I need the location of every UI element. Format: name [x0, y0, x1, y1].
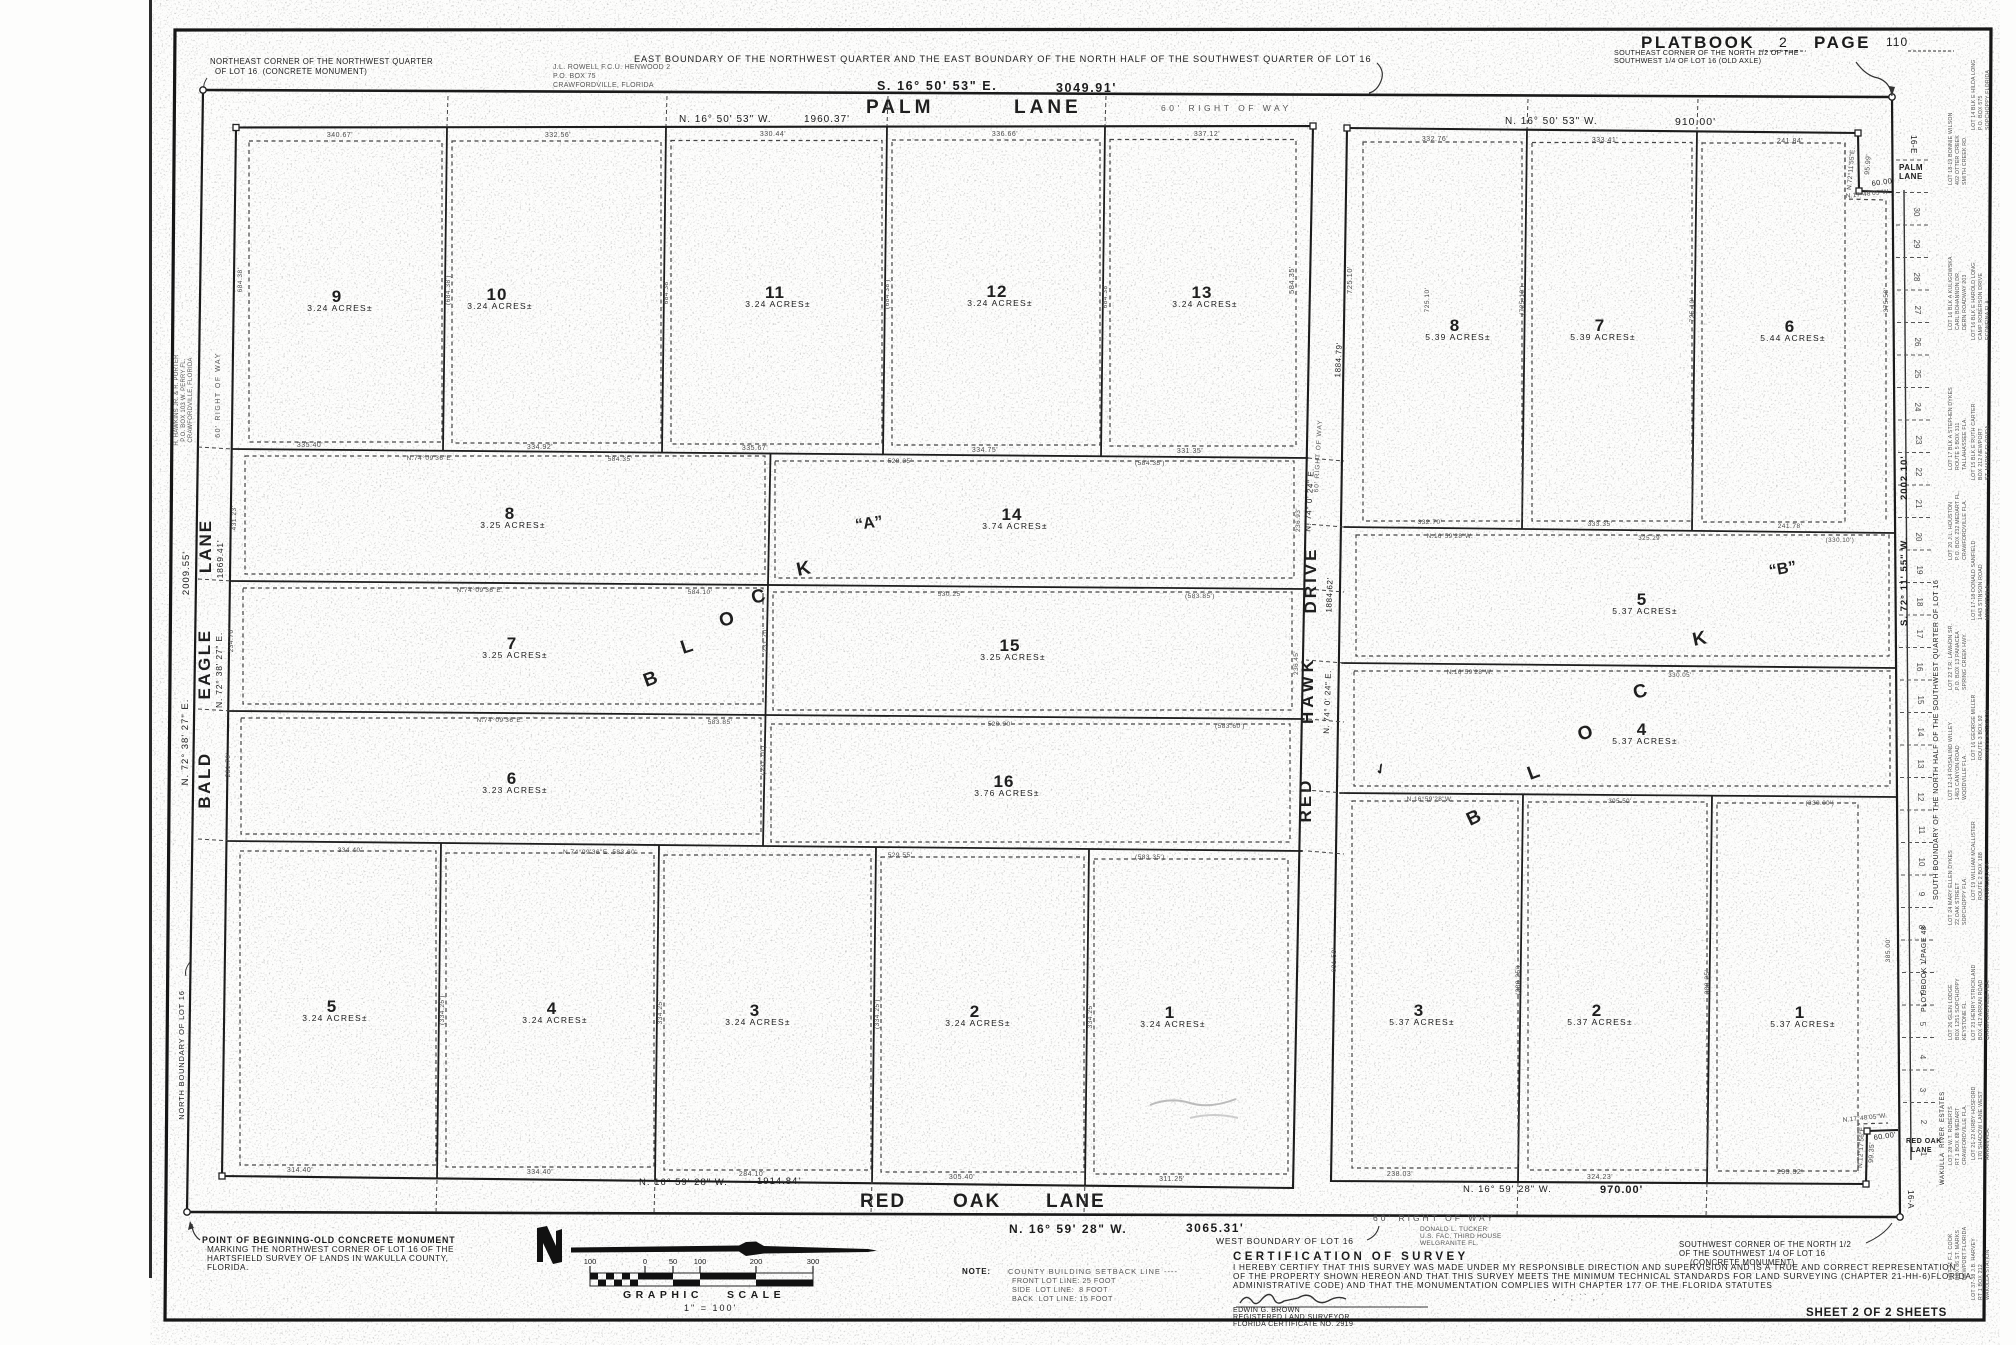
svg-text:3.24 ACRES±: 3.24 ACRES± — [945, 1018, 1011, 1028]
svg-text:529.90': 529.90' — [988, 721, 1013, 728]
svg-text:N. 16° 59' 28" W.: N. 16° 59' 28" W. — [1463, 1184, 1552, 1195]
svg-text:N.74°09'36"E.: N.74°09'36"E. — [407, 454, 454, 462]
svg-text:(231.70'): (231.70') — [760, 745, 767, 775]
svg-text:OAK: OAK — [953, 1191, 1001, 1212]
svg-text:PANACEA FLA.: PANACEA FLA. — [1985, 861, 1991, 900]
svg-text:3.76 ACRES±: 3.76 ACRES± — [974, 788, 1040, 798]
svg-text:J.L. ROWELL F.C.U. HENWOOD 2: J.L. ROWELL F.C.U. HENWOOD 2 — [553, 64, 670, 71]
svg-text:305.50': 305.50' — [1608, 798, 1632, 805]
svg-text:TALLAHASSEE FLA.: TALLAHASSEE FLA. — [1962, 418, 1968, 470]
svg-text:5.37 ACRES±: 5.37 ACRES± — [1612, 736, 1678, 746]
svg-text:28: 28 — [1912, 273, 1921, 282]
svg-text:3065.31': 3065.31' — [1186, 1221, 1244, 1235]
svg-text:(583.60'): (583.60') — [1215, 723, 1245, 730]
svg-text:NORTH BOUNDARY OF LOT 16: NORTH BOUNDARY OF LOT 16 — [177, 990, 186, 1120]
svg-text:50: 50 — [669, 1257, 677, 1266]
svg-text:LOT 26 GLEN LODGE: LOT 26 GLEN LODGE — [1948, 984, 1954, 1040]
svg-text:5.37 ACRES±: 5.37 ACRES± — [1612, 606, 1678, 616]
svg-text:402 OTTER CREEK: 402 OTTER CREEK — [1955, 135, 1961, 185]
svg-text:ROUTE 5 BOX 311: ROUTE 5 BOX 311 — [1955, 422, 1961, 470]
svg-text:2009.55': 2009.55' — [181, 551, 192, 595]
svg-text:3.23 ACRES±: 3.23 ACRES± — [482, 785, 548, 795]
svg-text:POINT OF BEGINNING-OLD CONCRET: POINT OF BEGINNING-OLD CONCRETE MONUMENT — [202, 1235, 455, 1245]
svg-text:13: 13 — [1916, 760, 1925, 769]
svg-text:631.58': 631.58' — [1331, 948, 1338, 973]
svg-text:ROUTE 2 BOX 188: ROUTE 2 BOX 188 — [1978, 852, 1984, 900]
svg-text:60' RIGHT OF WAY: 60' RIGHT OF WAY — [1373, 1213, 1496, 1223]
svg-text:22: 22 — [1914, 468, 1923, 477]
svg-text:OF THE SOUTHWEST 1/4 OF LOT 16: OF THE SOUTHWEST 1/4 OF LOT 16 — [1679, 1249, 1825, 1258]
svg-text:EAGLE: EAGLE — [195, 628, 214, 699]
svg-text:584.35': 584.35' — [1287, 266, 1296, 294]
svg-text:LANE: LANE — [196, 519, 215, 573]
svg-text:10: 10 — [1917, 858, 1926, 867]
svg-text:3.25 ACRES±: 3.25 ACRES± — [980, 652, 1046, 662]
svg-text:26: 26 — [1913, 338, 1922, 347]
svg-text:17: 17 — [1915, 630, 1924, 639]
svg-text:P.O. BOX 13 PANACEA: P.O. BOX 13 PANACEA — [1955, 631, 1961, 690]
svg-text:331.35': 331.35' — [1177, 448, 1203, 455]
svg-text:DERN ROADWAY 203: DERN ROADWAY 203 — [1962, 274, 1968, 330]
svg-text:335.40': 335.40' — [297, 442, 323, 449]
svg-text:WEST BOUNDARY OF LOT 16: WEST BOUNDARY OF LOT 16 — [1216, 1236, 1354, 1246]
svg-text:FLORIDA.: FLORIDA. — [207, 1263, 249, 1272]
svg-text:(583.35'): (583.35') — [1135, 854, 1165, 861]
svg-text:5.37 ACRES±: 5.37 ACRES± — [1389, 1017, 1455, 1027]
svg-text:170 SHADOW LANE WEST: 170 SHADOW LANE WEST — [1978, 1091, 1984, 1160]
svg-text:LOT 23 HENRY STRICKLAND: LOT 23 HENRY STRICKLAND — [1971, 964, 1977, 1040]
svg-text:SOUTHWEST CORNER OF THE NORTH: SOUTHWEST CORNER OF THE NORTH 1/2 — [1679, 1240, 1851, 1249]
svg-text:CRAWFORDVILLE, FLORIDA: CRAWFORDVILLE, FLORIDA — [188, 357, 194, 442]
svg-text:60' RIGHT OF WAY: 60' RIGHT OF WAY — [1161, 103, 1292, 113]
svg-text:584.10': 584.10' — [688, 589, 713, 596]
svg-text:5.39 ACRES±: 5.39 ACRES± — [1425, 332, 1491, 342]
svg-text:5.37 ACRES±: 5.37 ACRES± — [1567, 1017, 1633, 1027]
svg-text:SOUTHWEST 1/4 OF LOT 16 (OLD A: SOUTHWEST 1/4 OF LOT 16 (OLD AXLE) — [1614, 56, 1761, 65]
svg-text:1" = 100': 1" = 100' — [684, 1303, 737, 1313]
svg-text:27: 27 — [1913, 306, 1922, 315]
svg-text:N. 16° 59' 28" W.: N. 16° 59' 28" W. — [639, 1177, 728, 1188]
svg-text:LOT 20 J.L. HOUSTON: LOT 20 J.L. HOUSTON — [1948, 502, 1954, 560]
svg-text:DONALD L. TUCKER: DONALD L. TUCKER — [1420, 1226, 1488, 1233]
svg-text:N. 72° 38' 27" E.: N. 72° 38' 27" E. — [214, 632, 224, 708]
svg-text:9: 9 — [1917, 892, 1926, 897]
svg-text:375.58': 375.58' — [1883, 288, 1890, 313]
svg-text:3049.91': 3049.91' — [1056, 81, 1117, 95]
svg-text:(CONCRETE MONUMENT): (CONCRETE MONUMENT) — [1690, 1258, 1795, 1267]
svg-text:314.40': 314.40' — [287, 1167, 313, 1174]
svg-text:1463 CANYON ROAD: 1463 CANYON ROAD — [1955, 745, 1961, 800]
svg-text:910.00': 910.00' — [1675, 116, 1716, 128]
svg-text:684.38': 684.38' — [1102, 284, 1109, 309]
svg-text:16: 16 — [1915, 663, 1924, 672]
svg-text:SOPCHOPPY FLORIDA: SOPCHOPPY FLORIDA — [1985, 70, 1991, 130]
svg-text:388.25': 388.25' — [1704, 970, 1711, 995]
svg-text:340.67': 340.67' — [327, 132, 353, 139]
svg-text:P.O. BOX 232 MEDART FL.: P.O. BOX 232 MEDART FL. — [1955, 491, 1961, 560]
svg-text:FLORIDA CERTIFICATE NO. 2919: FLORIDA CERTIFICATE NO. 2919 — [1233, 1321, 1353, 1328]
svg-text:100: 100 — [584, 1257, 597, 1266]
svg-text:N.74°09'36"E.: N.74°09'36"E. — [457, 586, 504, 594]
svg-text:725.10': 725.10' — [1689, 298, 1696, 323]
svg-text:H. HAWKINS JR. & R. PORTER: H. HAWKINS JR. & R. PORTER — [174, 354, 180, 446]
svg-text:3.24 ACRES±: 3.24 ACRES± — [1140, 1019, 1206, 1029]
svg-text:NORTHEAST CORNER OF THE NORTHW: NORTHEAST CORNER OF THE NORTHWEST QUARTE… — [210, 57, 433, 66]
svg-text:385.00': 385.00' — [1885, 938, 1892, 963]
svg-text:25: 25 — [1913, 370, 1922, 379]
svg-text:MEDART FLA.: MEDART FLA. — [1985, 584, 1991, 620]
svg-text:U.S. FAC. THIRD HOUSE: U.S. FAC. THIRD HOUSE — [1420, 1233, 1502, 1240]
svg-text:5.44 ACRES±: 5.44 ACRES± — [1760, 333, 1826, 343]
svg-text:ARRAN FLA.: ARRAN FLA. — [1985, 1127, 1991, 1160]
svg-text:BOX 212 NEWPORT: BOX 212 NEWPORT — [1978, 427, 1984, 480]
svg-text:(684.38'): (684.38') — [884, 279, 891, 309]
svg-text:HAWK: HAWK — [1298, 656, 1317, 724]
svg-text:12: 12 — [1916, 793, 1925, 802]
svg-text:SPRING CREEK HWY.: SPRING CREEK HWY. — [1962, 633, 1968, 690]
svg-text:DRIVE: DRIVE — [1301, 547, 1320, 614]
svg-text:16-A: 16-A — [1906, 1190, 1915, 1209]
svg-text:30: 30 — [1912, 208, 1921, 217]
svg-text:REGISTERED LAND SURVEYOR: REGISTERED LAND SURVEYOR — [1233, 1314, 1350, 1321]
svg-text:332.56': 332.56' — [545, 132, 571, 139]
svg-text:GRAPHIC: GRAPHIC — [623, 1289, 703, 1301]
svg-text:EAST BOUNDARY OF THE NORTHWEST: EAST BOUNDARY OF THE NORTHWEST QUARTER A… — [634, 54, 1371, 64]
svg-text:725.10': 725.10' — [1345, 266, 1354, 294]
svg-text:241.78': 241.78' — [1778, 523, 1803, 530]
svg-text:P.O. BOX 103 W. PERRY FL.: P.O. BOX 103 W. PERRY FL. — [181, 358, 187, 442]
svg-text:LOT 12-14 ROSALIND WILLEY: LOT 12-14 ROSALIND WILLEY — [1948, 722, 1954, 800]
svg-text:21: 21 — [1914, 500, 1923, 509]
svg-text:22 OAK STREET: 22 OAK STREET — [1955, 882, 1961, 925]
svg-text:2: 2 — [1919, 1120, 1928, 1125]
svg-text:332.70': 332.70' — [1418, 519, 1443, 526]
svg-text:16-E: 16-E — [1909, 135, 1918, 154]
svg-text:684.38': 684.38' — [663, 280, 670, 305]
svg-text:HARTSFIELD SURVEY OF LANDS IN: HARTSFIELD SURVEY OF LANDS IN WAKULLA CO… — [207, 1254, 448, 1263]
svg-text:SOPCHOPPY FLA.: SOPCHOPPY FLA. — [1962, 877, 1968, 925]
svg-text:1443 STINSON ROAD: 1443 STINSON ROAD — [1978, 564, 1984, 620]
svg-text:0: 0 — [643, 1257, 647, 1266]
svg-text:18: 18 — [1915, 598, 1924, 607]
svg-text:LOT 17 BLK A STEPHEN DYKES: LOT 17 BLK A STEPHEN DYKES — [1948, 387, 1954, 470]
svg-text:334.40': 334.40' — [527, 1169, 553, 1176]
svg-text:LOT 22 T.R. LAWHON SR.: LOT 22 T.R. LAWHON SR. — [1948, 624, 1954, 690]
svg-text:3.74 ACRES±: 3.74 ACRES± — [982, 521, 1048, 531]
svg-text:(334.25'): (334.25') — [874, 999, 881, 1029]
svg-text:583.85': 583.85' — [708, 719, 733, 726]
svg-text:(684.38'): (684.38') — [445, 275, 452, 305]
svg-text:2002.10': 2002.10' — [1899, 455, 1910, 500]
svg-text:110: 110 — [1886, 35, 1908, 49]
svg-text:241.84': 241.84' — [1777, 138, 1803, 145]
svg-text:LOT 16 GEORGE MILLER: LOT 16 GEORGE MILLER — [1971, 694, 1977, 760]
svg-text:(388.25'): (388.25') — [1515, 965, 1522, 995]
svg-text:FRONT LOT LINE: 25 FOOT: FRONT LOT LINE: 25 FOOT — [1012, 1276, 1116, 1285]
svg-text:WAKULLA STATION: WAKULLA STATION — [1985, 709, 1991, 760]
svg-text:CRAWFORDVILLE, FLORIDA: CRAWFORDVILLE, FLORIDA — [553, 82, 654, 89]
svg-text:ROUTE 3 BOX 92: ROUTE 3 BOX 92 — [1978, 715, 1984, 760]
svg-text:529.55': 529.55' — [888, 852, 913, 859]
svg-text:COUNTY BUILDING SETBACK LINE -: COUNTY BUILDING SETBACK LINE ---- — [1008, 1267, 1178, 1276]
svg-text:970.00': 970.00' — [1600, 1184, 1643, 1196]
svg-text:3.24 ACRES±: 3.24 ACRES± — [302, 1013, 368, 1023]
svg-text:N.16°59'28"W.: N.16°59'28"W. — [1447, 669, 1493, 676]
svg-text:333.41': 333.41' — [1592, 137, 1618, 144]
svg-text:RT 1 BOX 88 MEDART: RT 1 BOX 88 MEDART — [1955, 1107, 1961, 1165]
svg-text:(583.85'): (583.85') — [1185, 593, 1215, 600]
svg-text:325.29': 325.29' — [1638, 535, 1662, 542]
svg-text:528.35': 528.35' — [888, 458, 913, 465]
svg-text:LOT 28 W.T. ROBERTS: LOT 28 W.T. ROBERTS — [1948, 1106, 1954, 1165]
svg-text:284.10': 284.10' — [739, 1171, 765, 1178]
svg-text:S. 72° 11' 55" W.: S. 72° 11' 55" W. — [1899, 537, 1910, 626]
svg-text:PALM: PALM — [1899, 163, 1923, 172]
svg-text:EDWIN G. BROWN: EDWIN G. BROWN — [1233, 1307, 1300, 1314]
svg-text:3.25 ACRES±: 3.25 ACRES± — [482, 650, 548, 660]
svg-text:SMITH CREEK RD.: SMITH CREEK RD. — [1962, 136, 1968, 185]
svg-text:684.38': 684.38' — [237, 268, 244, 293]
svg-text:BACK LOT LINE: 15 FOOT: BACK LOT LINE: 15 FOOT — [1012, 1294, 1113, 1303]
svg-text:KEYSTONE FL.: KEYSTONE FL. — [1962, 1001, 1968, 1041]
svg-text:CERTIFICATION OF SURVEY: CERTIFICATION OF SURVEY — [1233, 1251, 1469, 1263]
svg-text:OF LOT 16 (CONCRETE MONUMENT): OF LOT 16 (CONCRETE MONUMENT) — [215, 67, 367, 76]
svg-text:3.24 ACRES±: 3.24 ACRES± — [1172, 299, 1238, 309]
svg-text:3.24 ACRES±: 3.24 ACRES± — [522, 1015, 588, 1025]
svg-text:336.66': 336.66' — [992, 131, 1018, 138]
svg-text:N. 72° 38' 27" E.: N. 72° 38' 27" E. — [180, 699, 191, 786]
svg-text:CAMP ROBERSON DRIVE: CAMP ROBERSON DRIVE — [1978, 273, 1984, 340]
svg-text:BOX 412 ARRAN ROAD: BOX 412 ARRAN ROAD — [1978, 980, 1984, 1040]
svg-text:(334.25'): (334.25') — [439, 995, 446, 1025]
svg-text:CARL BOHANNON DR.: CARL BOHANNON DR. — [1955, 271, 1961, 330]
svg-text:WAKULLA RIVER ESTATES: WAKULLA RIVER ESTATES — [1940, 1091, 1946, 1185]
svg-text:1884.79': 1884.79' — [1333, 342, 1344, 378]
svg-text:330.44': 330.44' — [760, 131, 786, 138]
svg-text:5.39 ACRES±: 5.39 ACRES± — [1570, 332, 1636, 342]
svg-text:530.25': 530.25' — [938, 591, 963, 598]
svg-text:200: 200 — [750, 1257, 763, 1266]
svg-text:S. 16° 50' 53" E.: S. 16° 50' 53" E. — [877, 79, 997, 93]
svg-text:234.70': 234.70' — [228, 628, 235, 653]
svg-text:N. 16° 50' 53" W.: N. 16° 50' 53" W. — [679, 114, 772, 125]
svg-text:99.35': 99.35' — [1868, 1142, 1876, 1163]
svg-text:1869.41': 1869.41' — [215, 540, 225, 579]
svg-text:LOT 18-19 BONNIE WILSON: LOT 18-19 BONNIE WILSON — [1948, 112, 1954, 185]
svg-text:BALD: BALD — [195, 751, 214, 808]
svg-text:LOT 37-38 J.B. HARVEY: LOT 37-38 J.B. HARVEY — [1971, 1238, 1977, 1300]
svg-text:725.10': 725.10' — [1424, 288, 1431, 313]
svg-text:SCALE: SCALE — [727, 1289, 785, 1301]
svg-text:293.32': 293.32' — [1777, 1169, 1803, 1176]
svg-text:(330.10'): (330.10') — [1826, 537, 1855, 544]
svg-text:15: 15 — [1916, 696, 1925, 705]
svg-text:5.37 ACRES±: 5.37 ACRES± — [1770, 1019, 1836, 1029]
svg-text:311.25': 311.25' — [1159, 1176, 1185, 1183]
svg-text:N.74°09'36"E. 583.60': N.74°09'36"E. 583.60' — [563, 848, 637, 856]
svg-text:334.75': 334.75' — [972, 447, 998, 454]
svg-text:SIDE LOT LINE: 8 FOOT: SIDE LOT LINE: 8 FOOT — [1012, 1285, 1108, 1294]
svg-text:LANE: LANE — [1014, 97, 1082, 118]
svg-text:LOT 24 MARY ELLEN DYKES: LOT 24 MARY ELLEN DYKES — [1948, 850, 1954, 925]
svg-text:NOTE:: NOTE: — [962, 1267, 991, 1276]
svg-text:3: 3 — [1918, 1088, 1927, 1093]
svg-text:RED: RED — [860, 1191, 906, 1212]
svg-text:NEWPORT FLORIDA: NEWPORT FLORIDA — [1962, 1226, 1968, 1280]
svg-text:20: 20 — [1914, 533, 1923, 542]
svg-text:N.16°59'28"W.: N.16°59'28"W. — [1407, 796, 1453, 803]
svg-text:N.16°59'28"W.: N.16°59'28"W. — [1427, 533, 1473, 540]
svg-text:ST. MARKS FLORIDA: ST. MARKS FLORIDA — [1985, 425, 1991, 480]
svg-text:SHEET 2 OF 2 SHEETS: SHEET 2 OF 2 SHEETS — [1806, 1307, 1947, 1319]
svg-text:5: 5 — [1918, 1022, 1927, 1027]
svg-text:LOT 15 BLK E RUTH CARTER: LOT 15 BLK E RUTH CARTER — [1971, 403, 1977, 480]
svg-text:LANE: LANE — [1911, 1147, 1932, 1154]
svg-text:14: 14 — [1916, 728, 1925, 737]
svg-text:RED: RED — [1296, 778, 1315, 823]
svg-text:3.24 ACRES±: 3.24 ACRES± — [467, 301, 533, 311]
svg-text:LOT 16 BLK E HAROLD LONG: LOT 16 BLK E HAROLD LONG — [1971, 263, 1977, 340]
svg-text:. , ´ ; `` , ´: . , ´ ; `` , ´ — [1545, 1293, 1606, 1302]
svg-text:PLOT BOOK 1 PAGE 48: PLOT BOOK 1 PAGE 48 — [1921, 926, 1928, 1012]
svg-text:584.35': 584.35' — [608, 456, 633, 463]
svg-text:MARKING THE NORTHWEST CORNER O: MARKING THE NORTHWEST CORNER OF LOT 16 O… — [207, 1245, 454, 1254]
svg-text:3.24 ACRES±: 3.24 ACRES± — [307, 303, 373, 313]
svg-text:(330.00'): (330.00') — [1806, 800, 1835, 807]
svg-text:300: 300 — [807, 1257, 820, 1266]
svg-text:1884.62': 1884.62' — [1324, 577, 1334, 613]
svg-text:LOT 21-22 KIRBY HOSFORD: LOT 21-22 KIRBY HOSFORD — [1971, 1086, 1977, 1160]
svg-text:P.O. BOX 575: P.O. BOX 575 — [1978, 95, 1984, 130]
svg-text:238.03': 238.03' — [1387, 1171, 1413, 1178]
svg-text:305.40': 305.40' — [949, 1174, 975, 1181]
svg-text:335.67': 335.67' — [742, 445, 768, 452]
svg-text:LOT 31 F.J. COOK: LOT 31 F.J. COOK — [1948, 1233, 1954, 1280]
svg-text:SOUTH BOUNDARY OF THE NORTH HA: SOUTH BOUNDARY OF THE NORTH HALF OF THE … — [1933, 580, 1940, 900]
svg-text:431.23': 431.23' — [231, 506, 238, 531]
svg-text:N.74°09'36"E.: N.74°09'36"E. — [477, 716, 524, 724]
svg-text:3.24 ACRES±: 3.24 ACRES± — [745, 299, 811, 309]
svg-text:CRAWFORDVILLE FLA.: CRAWFORDVILLE FLA. — [1962, 1105, 1968, 1165]
svg-text:(725.10'): (725.10') — [1519, 285, 1526, 315]
svg-text:231.70': 231.70' — [762, 628, 769, 653]
svg-text:337.12': 337.12' — [1194, 131, 1220, 138]
svg-text:(584.35'): (584.35') — [1135, 460, 1165, 467]
svg-text:WOODVILLE FLA.: WOODVILLE FLA. — [1962, 754, 1968, 800]
svg-text:1960.37': 1960.37' — [804, 114, 850, 125]
svg-text:100: 100 — [694, 1257, 707, 1266]
svg-text:11: 11 — [1917, 826, 1926, 835]
svg-text:23: 23 — [1914, 436, 1923, 445]
svg-text:334.40': 334.40' — [338, 847, 363, 854]
svg-text:231.79': 231.79' — [225, 753, 232, 778]
svg-text:333.35': 333.35' — [1588, 521, 1613, 528]
svg-text:334.25': 334.25' — [1087, 1004, 1094, 1029]
svg-text:N. 16° 59' 28" W.: N. 16° 59' 28" W. — [1009, 1222, 1127, 1236]
svg-text:LOT 16 BLK A KULIGOWSKA: LOT 16 BLK A KULIGOWSKA — [1948, 256, 1954, 330]
svg-text:BOX 86 ST. MARKS: BOX 86 ST. MARKS — [1955, 1229, 1961, 1280]
svg-text:3.25 ACRES±: 3.25 ACRES± — [480, 520, 546, 530]
svg-text:LOT 19 WILLIAM MCALLISTER: LOT 19 WILLIAM MCALLISTER — [1971, 821, 1977, 900]
svg-text:29: 29 — [1912, 240, 1921, 249]
svg-text:60' RIGHT OF WAY: 60' RIGHT OF WAY — [215, 352, 222, 438]
svg-text:LANE: LANE — [1046, 1191, 1106, 1212]
svg-text:3.24 ACRES±: 3.24 ACRES± — [725, 1017, 791, 1027]
svg-text:RT 1 BOX 212: RT 1 BOX 212 — [1978, 1264, 1984, 1300]
svg-text:PALM: PALM — [866, 97, 934, 118]
svg-text:CRAWFORDVILLE FLA.: CRAWFORDVILLE FLA. — [1985, 980, 1991, 1040]
svg-text:WAKULLA STATION: WAKULLA STATION — [1985, 1249, 1991, 1300]
svg-text:CRAWFORDVILLE FLA.: CRAWFORDVILLE FLA. — [1962, 500, 1968, 560]
svg-text:324.23': 324.23' — [1587, 1174, 1613, 1181]
svg-text:330.05': 330.05' — [1668, 672, 1692, 679]
svg-text:ADMINISTRATIVE CODE) AND THAT: ADMINISTRATIVE CODE) AND THAT THE MONUME… — [1233, 1281, 1773, 1290]
svg-text:236.93': 236.93' — [1295, 508, 1302, 532]
svg-text:3.24 ACRES±: 3.24 ACRES± — [967, 298, 1033, 308]
svg-text:LANE: LANE — [1899, 172, 1923, 181]
svg-text:236.45': 236.45' — [1293, 651, 1300, 675]
svg-text:P.O. BOX 75: P.O. BOX 75 — [553, 73, 596, 80]
svg-text:334.25': 334.25' — [657, 1000, 664, 1025]
svg-text:332.76': 332.76' — [1422, 136, 1448, 143]
svg-text:ECONFINA FLA.: ECONFINA FLA. — [1985, 298, 1991, 340]
svg-text:LOT 17-18 DONALD SANFIELD: LOT 17-18 DONALD SANFIELD — [1971, 540, 1977, 620]
svg-text:LOT 14 BLK E HILDA LONG: LOT 14 BLK E HILDA LONG — [1971, 59, 1977, 130]
svg-text:334.92': 334.92' — [527, 444, 553, 451]
svg-text:N. 16° 50' 53" W.: N. 16° 50' 53" W. — [1505, 116, 1598, 127]
svg-text:19: 19 — [1915, 566, 1924, 575]
svg-text:OF THE PROPERTY SHOWN HEREON A: OF THE PROPERTY SHOWN HEREON AND THAT TH… — [1233, 1272, 1972, 1281]
svg-text:I HEREBY CERTIFY THAT THIS SUR: I HEREBY CERTIFY THAT THIS SURVEY WAS MA… — [1233, 1263, 1956, 1272]
svg-text:WELGRANITE FL.: WELGRANITE FL. — [1420, 1240, 1478, 1247]
svg-text:4: 4 — [1918, 1055, 1927, 1060]
svg-text:RED OAK: RED OAK — [1906, 1138, 1942, 1145]
svg-text:24: 24 — [1913, 403, 1922, 412]
svg-text:BOX 1251 SOPCHOPPY: BOX 1251 SOPCHOPPY — [1955, 978, 1961, 1040]
svg-text:PAGE: PAGE — [1814, 33, 1871, 52]
